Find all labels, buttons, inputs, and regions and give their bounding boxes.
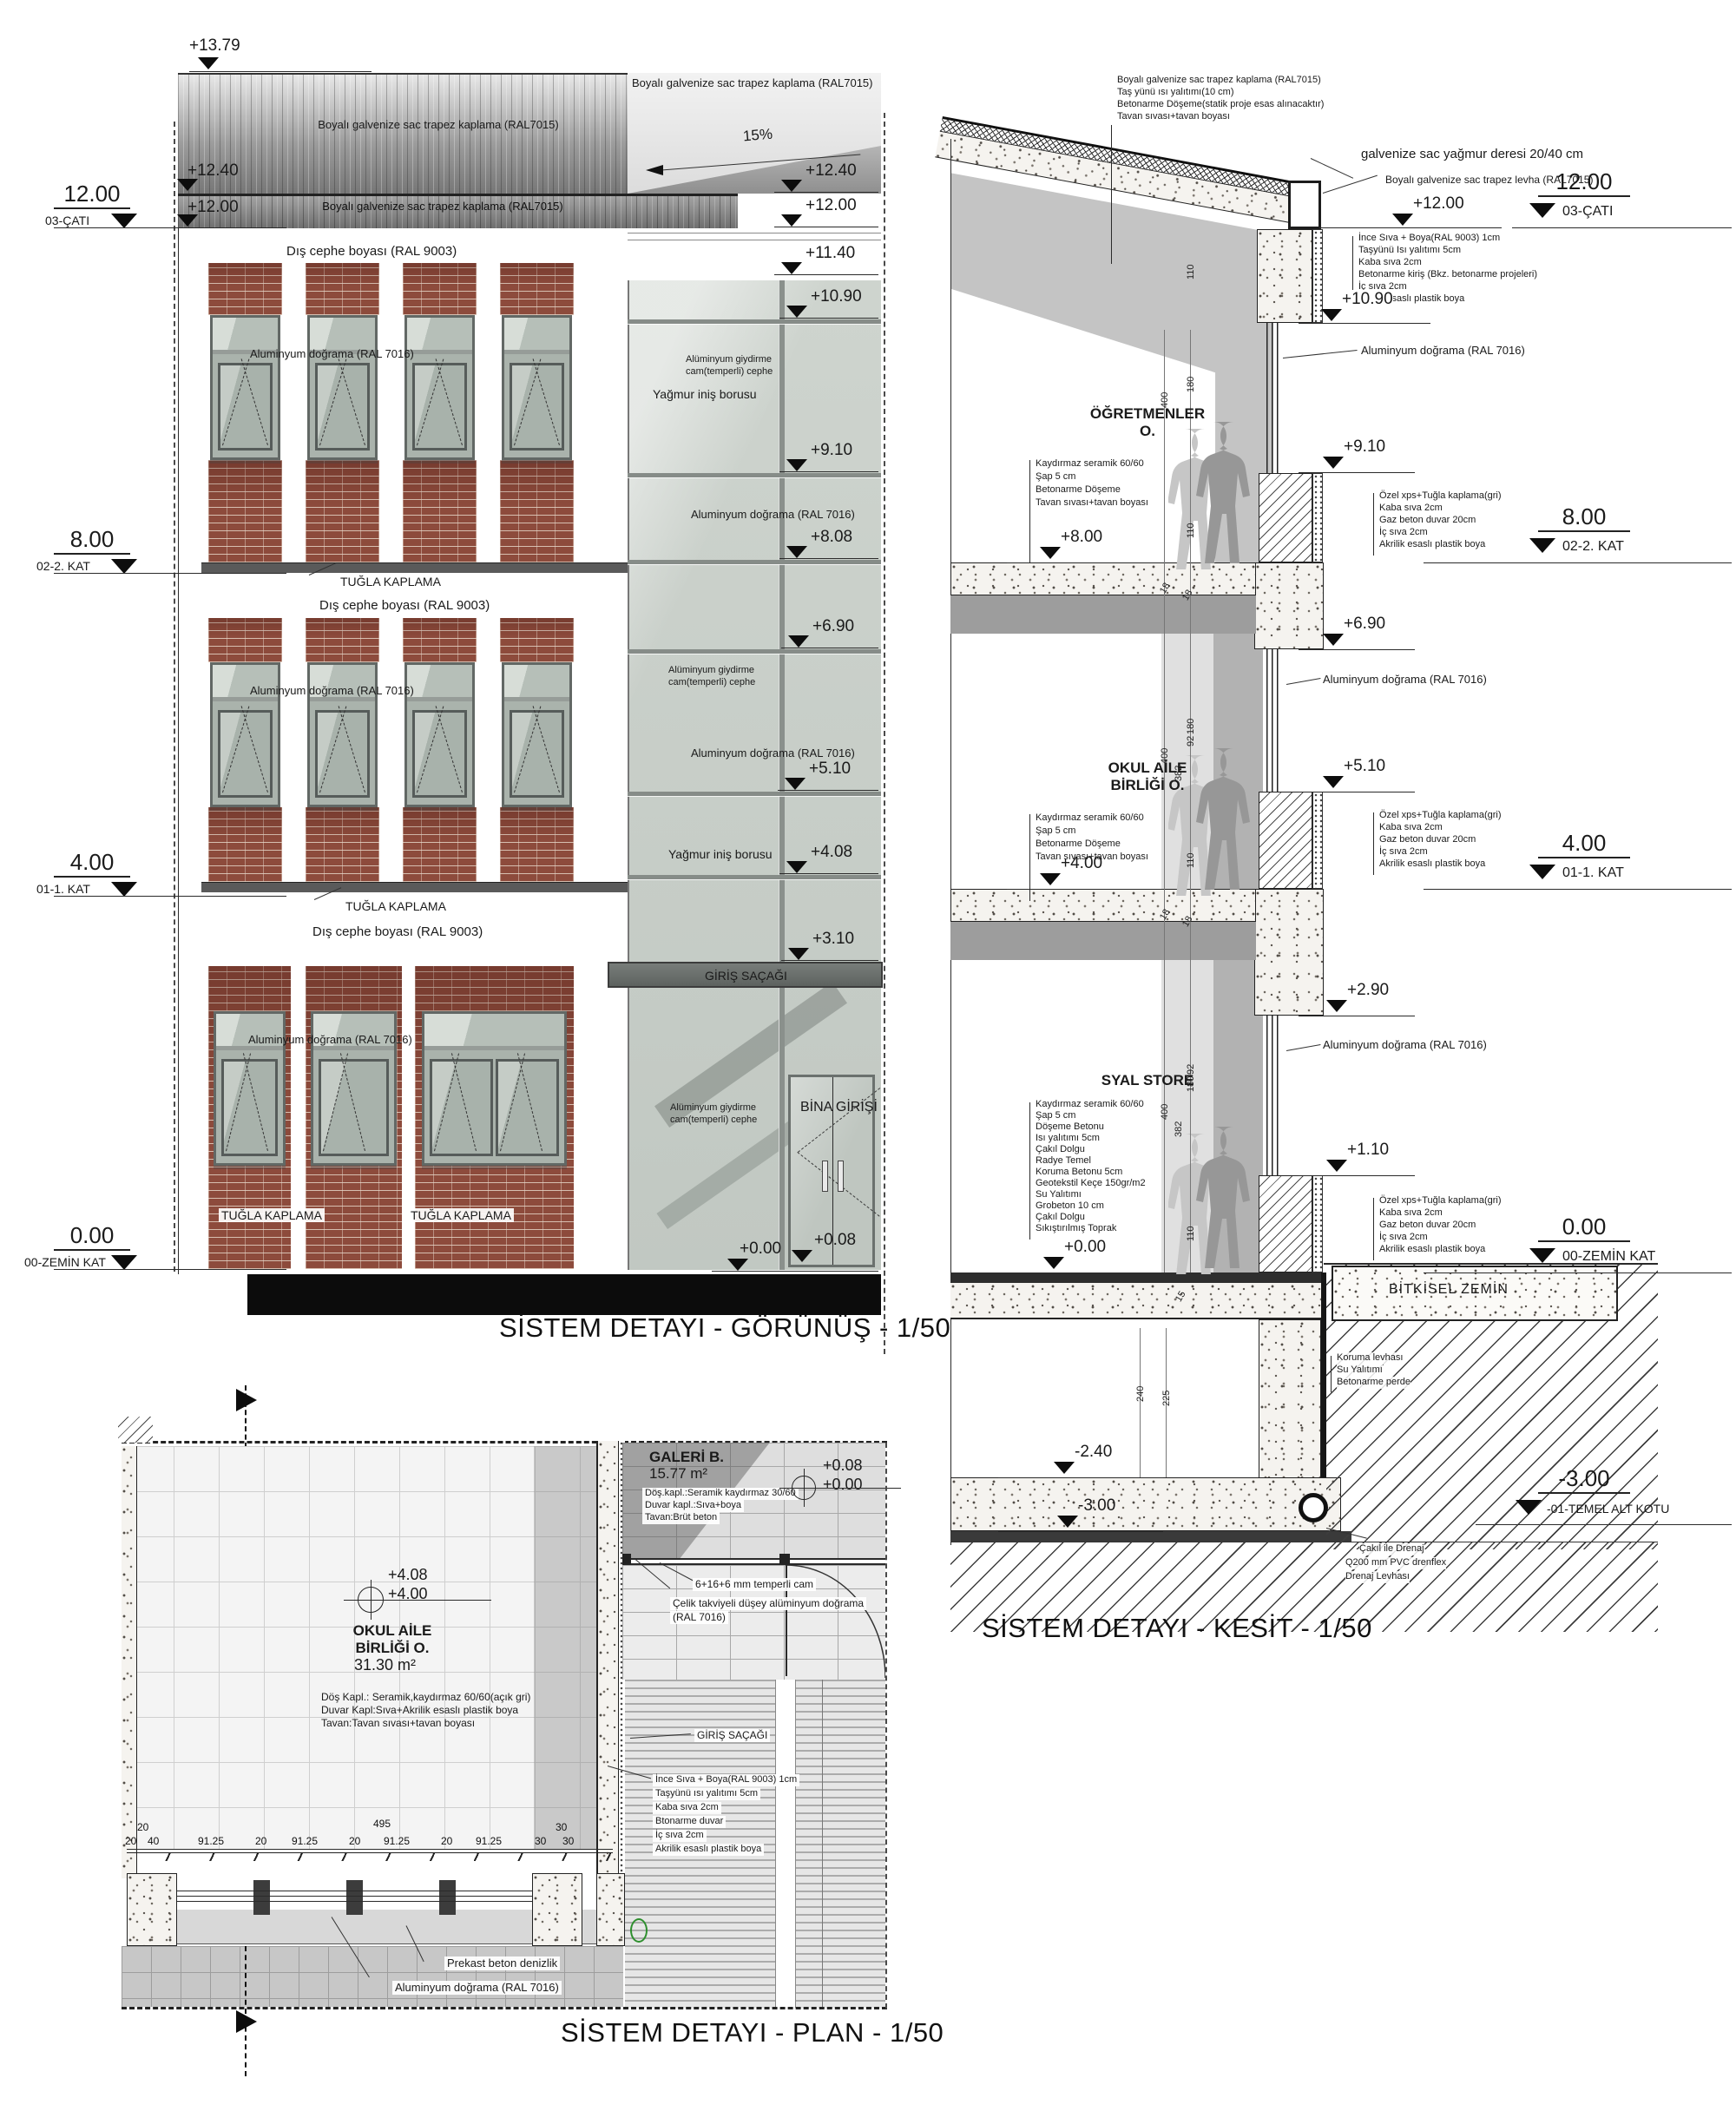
level-triangle — [1323, 776, 1344, 788]
canopy-edge-line — [822, 1680, 823, 2008]
dim-value: 110 — [1186, 852, 1196, 868]
storey-triangle — [111, 882, 137, 897]
dim-value: 20 — [255, 1835, 266, 1847]
window-casement — [221, 1059, 278, 1156]
dim-value: 91.25 — [292, 1835, 318, 1847]
window-fixed-pane — [504, 665, 569, 701]
window-casement — [315, 363, 370, 450]
elevation-boundary-dashed-line — [174, 122, 175, 1272]
storey-triangle — [1529, 865, 1555, 879]
level-line — [189, 71, 372, 72]
room-layers: Sıkıştırılmış Toprak — [1036, 1223, 1116, 1235]
curtain-label-line1: Alüminyum giydirme — [670, 1102, 756, 1115]
storey-level-value: 4.00 — [1538, 830, 1630, 858]
wall-layers: Özel xps+Tuğla kaplama(gri) — [1379, 490, 1502, 503]
curtain-mullion — [628, 560, 881, 564]
level-mark: +9.10 — [811, 441, 852, 460]
brick-pier — [208, 263, 282, 315]
curtain-mullion-vertical — [779, 280, 785, 1270]
level-line — [1299, 792, 1415, 792]
dim-value: 20 — [349, 1835, 360, 1847]
floor-slab — [201, 562, 628, 573]
dim-value: 382 — [1174, 1121, 1184, 1137]
storey-level-label: 03-ÇATI — [45, 214, 89, 227]
level-symbol-line — [371, 1580, 372, 1620]
room-layers: Duvar Kapl:Sıva+Akrilik esaslı plastik b… — [321, 1704, 518, 1717]
room-layers: Şap 5 cm — [1036, 471, 1075, 483]
dim-value: 91.25 — [476, 1835, 502, 1847]
basement-wall-layers: Koruma levhası — [1337, 1352, 1403, 1365]
curtain-mullion — [628, 792, 881, 796]
elevation-title: SİSTEM DETAYI - GÖRÜNÜŞ - 1/50 — [499, 1312, 950, 1344]
plan-mullion — [253, 1880, 270, 1915]
plan-bottom-cut-line — [122, 2007, 887, 2009]
brick-pier — [306, 618, 379, 662]
level-mark: +10.90 — [1342, 290, 1393, 309]
storey-level-value: 8.00 — [54, 526, 130, 555]
curtain-label-line2: cam(temperli) cephe — [670, 1115, 757, 1127]
storey-triangle — [111, 559, 137, 574]
leader — [1286, 1044, 1321, 1051]
level-triangle — [786, 459, 807, 471]
room-layers: Tavan:Tavan sıvası+tavan boyası — [321, 1717, 475, 1730]
storey-line — [1424, 889, 1732, 890]
plan-mullion — [346, 1880, 363, 1915]
room-layers: Tavan sıvası+tavan boyası — [1036, 497, 1148, 510]
curtain-mullion — [628, 473, 881, 477]
level-mark: -2.40 — [1075, 1443, 1112, 1462]
level-mark: +12.00 — [1413, 194, 1464, 214]
plan-room-bottom-line — [127, 1849, 613, 1850]
basement-wall-layers: Betonarme perde — [1337, 1377, 1410, 1389]
level-triangle — [1323, 634, 1344, 646]
leader — [1323, 175, 1378, 194]
storey-level-value: 12.00 — [1538, 168, 1630, 197]
dim-upper: 30 — [556, 1821, 567, 1833]
brick-pier — [500, 263, 574, 315]
parapet-beam — [1257, 229, 1312, 323]
level-triangle — [198, 57, 219, 69]
room-layers: Şap 5 cm — [1036, 1110, 1075, 1122]
window — [210, 315, 280, 460]
brick-pier — [403, 460, 477, 562]
dim-value: 225 — [1161, 1391, 1172, 1406]
foundation-raft — [950, 1477, 1341, 1531]
level-mark: -3.00 — [1078, 1496, 1115, 1516]
level-triangle — [781, 262, 802, 274]
alum-frame-label: Aluminyum doğrama (RAL 7016) — [1361, 344, 1525, 358]
level-mark: +12.40 — [806, 161, 857, 181]
level-triangle — [1392, 214, 1413, 226]
layer-bracket — [1029, 814, 1030, 901]
level-mark: +12.00 — [806, 196, 857, 215]
level-triangle — [786, 306, 807, 318]
tempered-glass-label: 6+16+6 mm temperli cam — [693, 1578, 816, 1591]
drain-label: Çakıl ile Drenaj — [1359, 1543, 1424, 1555]
level-line — [998, 1531, 1163, 1532]
plan-glazing-line — [177, 1891, 532, 1891]
level-triangle — [781, 214, 802, 227]
room-layers: Çakıl Dolgu — [1036, 1212, 1085, 1224]
drain-label: Q200 mm PVC drenflex — [1345, 1557, 1446, 1569]
roof-cladding-band-upper — [178, 73, 628, 194]
alum-frame-label: Aluminyum doğrama (RAL 7016) — [1323, 673, 1487, 687]
level-triangle — [786, 546, 807, 558]
storey-line — [1424, 1273, 1732, 1273]
level-line — [1299, 649, 1415, 650]
roof-edge-line — [628, 240, 881, 240]
dim-value: 180 — [1186, 719, 1196, 734]
room-layers: Kaydırmaz seramik 60/60 — [1036, 812, 1144, 825]
plan-left-wall — [122, 1446, 137, 1878]
drain-label: Drenaj Levhası — [1345, 1571, 1410, 1583]
level-triangle — [781, 180, 802, 192]
level-triangle — [727, 1259, 748, 1271]
room-layers: Radye Temel — [1036, 1155, 1091, 1167]
level-line — [1299, 1175, 1415, 1176]
level-line — [774, 227, 878, 227]
roof-layers: Betonarme Döşeme(statik proje esas alına… — [1117, 99, 1324, 111]
level-mark: +3.10 — [812, 930, 854, 949]
spandrel-insulation — [1312, 473, 1323, 562]
room-name: OKUL AİLE — [314, 1623, 470, 1639]
room-layers: Kaydırmaz seramik 60/60 — [1036, 1099, 1144, 1111]
window-casement — [319, 1059, 389, 1156]
layer-bracket — [1029, 460, 1030, 562]
brick-pier — [500, 460, 574, 562]
canopy-gap — [775, 1680, 796, 2008]
level-triangle — [788, 948, 809, 960]
precast-sill-label: Prekast beton denizlik — [444, 1956, 560, 1970]
plan-wall-layers: İç sıva 2cm — [653, 1830, 707, 1842]
wall-layers: İç sıva 2cm — [1379, 527, 1428, 539]
alum-frame-label: Aluminyum doğrama (RAL 7016) — [1323, 1038, 1487, 1052]
exterior-paving — [122, 1946, 623, 2007]
slab-soffit — [950, 595, 1256, 634]
facade-paint-label-3: Dış cephe boyası (RAL 9003) — [312, 925, 483, 939]
level-line — [779, 471, 878, 472]
room-name-2: BİRLİĞİ O. — [314, 1641, 470, 1656]
dim-line — [1190, 330, 1191, 1273]
alum-frame-label: Aluminyum doğrama (RAL 7016) — [392, 1981, 562, 1995]
level-mark: +4.08 — [811, 843, 852, 862]
leader — [1311, 158, 1353, 179]
leader — [1283, 350, 1358, 358]
dim-value: 20 — [125, 1835, 136, 1847]
parapet-layers: Betonarme kiriş (Bkz. betonarme projeler… — [1358, 269, 1537, 281]
brick-cladding-label: TUĞLA KAPLAMA — [340, 575, 441, 589]
level-mark: +11.40 — [806, 244, 855, 263]
dim-value: 30 — [535, 1835, 546, 1847]
level-symbol-line — [344, 1600, 491, 1601]
room-name-2: O. — [1069, 424, 1226, 439]
plan-wall-layers: Akrilik esaslı plastik boya — [653, 1844, 764, 1856]
galeri-level-top: +0.08 — [823, 1457, 863, 1475]
level-triangle — [786, 861, 807, 873]
steel-frame-label-2: (RAL 7016) — [670, 1611, 728, 1624]
building-edge — [178, 228, 179, 1274]
canopy-label: GİRİŞ SAÇAĞI — [694, 1729, 770, 1742]
plan-corner-wall-hatch — [118, 1417, 153, 1443]
level-line — [779, 558, 878, 559]
parapet-layers: Taşyünü Isı yalıtımı 5cm — [1358, 245, 1461, 257]
room-name: ÖĞRETMENLER — [1069, 406, 1226, 422]
curtain-label-line2: cam(temperli) cephe — [668, 677, 755, 689]
person-figure — [1168, 1120, 1299, 1274]
window-fixed-pane — [504, 318, 569, 354]
roof-layers: Taş yünü ısı yalıtımı(10 cm) — [1117, 87, 1233, 99]
dim-upper: 495 — [373, 1818, 391, 1830]
plan-mullion — [439, 1880, 456, 1915]
level-line — [779, 873, 878, 874]
storey-level-label: 02-2. KAT — [36, 559, 90, 573]
roof-label-3-clipped: Boyalı galvenize sac trapez kaplama (RAL… — [632, 76, 880, 90]
wall-layers: İç sıva 2cm — [1379, 846, 1428, 858]
edge-beam — [1254, 889, 1324, 1016]
parapet-layers: İnce Sıva + Boya(RAL 9003) 1cm — [1358, 233, 1500, 245]
alum-frame-label: Aluminyum doğrama (RAL 7016) — [250, 347, 414, 361]
window-casement — [315, 710, 370, 798]
level-mark: +1.10 — [1347, 1141, 1389, 1160]
gutter-label: galvenize sac yağmur deresi 20/40 cm — [1361, 148, 1583, 161]
dim-value: 180 — [1186, 377, 1196, 392]
level-mark: +6.90 — [812, 617, 854, 636]
brick-pier — [403, 263, 477, 315]
level-line — [998, 1477, 1163, 1478]
facade-paint-label-2: Dış cephe boyası (RAL 9003) — [319, 599, 490, 613]
storey-triangle — [111, 214, 137, 228]
galeri-area: 15.77 m² — [649, 1467, 707, 1481]
storey-level-value: 0.00 — [1538, 1213, 1630, 1242]
dim-value: 400 — [1160, 1104, 1170, 1120]
room-name-2: BİRLİĞİ O. — [1069, 778, 1226, 793]
rain-pipe-label: Yağmur iniş borusu — [653, 387, 757, 401]
storey-level-label: 03-ÇATI — [1562, 205, 1613, 219]
shop-window — [422, 1011, 567, 1166]
room-layers: Geotekstil Keçe 150gr/m2 — [1036, 1178, 1146, 1190]
window-casement — [218, 710, 273, 798]
room-layers: Betonarme Döşeme — [1036, 838, 1121, 851]
brick-pier — [403, 618, 477, 662]
level-triangle — [1326, 1000, 1347, 1012]
level-triangle — [1043, 1257, 1064, 1269]
brick-pier — [306, 460, 379, 562]
door-handle — [822, 1161, 828, 1192]
level-line — [778, 790, 878, 791]
room-layers: Grobeton 10 cm — [1036, 1200, 1104, 1213]
dim-value: 240 — [1135, 1386, 1146, 1402]
level-triangle — [785, 778, 806, 790]
window — [502, 662, 572, 807]
room-name: OKUL AİLE — [1069, 760, 1226, 776]
roof-layers: Boyalı galvenize sac trapez kaplama (RAL… — [1117, 75, 1321, 87]
level-mark: +8.00 — [1061, 528, 1102, 547]
storey-triangle — [1529, 538, 1555, 553]
section-title: SİSTEM DETAYI - KESİT - 1/50 — [982, 1613, 1372, 1644]
window-casement — [412, 710, 467, 798]
dim-value: 91.25 — [384, 1835, 410, 1847]
level-mark-entry-inner: +0.00 — [740, 1240, 781, 1259]
level-triangle — [1057, 1516, 1078, 1528]
facade-paint-label-1: Dış cephe boyası (RAL 9003) — [286, 245, 457, 259]
window-fixed-pane — [407, 318, 472, 354]
storey-level-label: 00-ZEMİN KAT — [24, 1255, 106, 1269]
level-mark: +10.90 — [811, 287, 862, 306]
level-mark-entry-outer: +0.08 — [814, 1231, 856, 1250]
storey-line — [54, 227, 286, 228]
alum-frame-label: Aluminyum doğrama (RAL 7016) — [691, 746, 855, 760]
level-line — [1299, 1016, 1415, 1016]
wall-layers: Özel xps+Tuğla kaplama(gri) — [1379, 1195, 1502, 1207]
level-triangle — [177, 179, 198, 191]
curtain-mullion — [628, 319, 881, 324]
galeri-level-bottom: +0.00 — [823, 1476, 863, 1494]
plan-right-cut-line — [885, 1443, 887, 2009]
dim-value: 92 — [1186, 736, 1196, 746]
dim-line-with-ticks — [127, 1852, 613, 1861]
level-line — [774, 274, 878, 275]
storey-line — [1476, 1524, 1732, 1525]
dim-upper: 20 — [137, 1821, 148, 1833]
dim-value: 30 — [562, 1835, 574, 1847]
storey-level-label: -01-TEMEL ALT KOTU — [1547, 1502, 1669, 1516]
basement-wall-layers: Su Yalıtımı — [1337, 1365, 1383, 1377]
level-triangle — [1326, 1160, 1347, 1172]
wall-layers: Akrilik esaslı plastik boya — [1379, 1244, 1485, 1256]
dim-line — [1140, 1328, 1141, 1477]
wall-layers: İç sıva 2cm — [1379, 1232, 1428, 1244]
level-symbol-line — [779, 1488, 901, 1489]
level-line — [1319, 227, 1502, 228]
level-mark: +0.00 — [1064, 1238, 1106, 1257]
window — [502, 315, 572, 460]
steel-frame-label-1: Çelik takviyeli düşey alüminyum doğrama — [670, 1597, 866, 1610]
slab-soffit — [950, 922, 1256, 960]
storey-triangle — [1529, 203, 1555, 218]
wall-layers: Gaz beton duvar 20cm — [1379, 834, 1476, 846]
room-layers: Betonarme Döşeme — [1036, 484, 1121, 497]
storey-level-label: 01-1. KAT — [1562, 866, 1624, 880]
dim-line — [1164, 330, 1165, 1273]
storey-line — [54, 896, 286, 897]
floor-slab — [201, 882, 628, 892]
room-layers: Isı yalıtımı 5cm — [1036, 1133, 1100, 1145]
room-level-top: +4.08 — [388, 1566, 428, 1584]
room-layers: Koruma Betonu 5cm — [1036, 1167, 1122, 1179]
level-line — [712, 1271, 878, 1272]
window-casement — [218, 363, 273, 450]
window-casement — [430, 1059, 493, 1156]
brick-pier — [403, 807, 477, 882]
section-cut-arrow — [236, 1389, 257, 1411]
edge-beam — [1254, 562, 1324, 649]
level-line — [1299, 323, 1430, 324]
dim-value: 110 — [1186, 264, 1196, 279]
alum-frame-label: Aluminyum doğrama (RAL 7016) — [248, 1033, 412, 1047]
level-line — [1007, 889, 1163, 890]
storey-line — [1512, 227, 1732, 228]
window-fixed-pane — [424, 1014, 564, 1050]
level-mark: +6.90 — [1344, 615, 1385, 634]
level-line — [781, 960, 878, 961]
window-casement — [496, 1059, 559, 1156]
rain-pipe-label: Yağmur iniş borusu — [668, 847, 773, 861]
plan-wall-layers: Kaba sıva 2cm — [653, 1802, 721, 1814]
galeri-layers: Döş.kapl.:Seramik kaydırmaz 30/60 — [642, 1488, 799, 1500]
storey-line — [54, 573, 286, 574]
curtain-mullion — [628, 875, 881, 879]
level-triangle — [1040, 873, 1061, 885]
galeri-name: GALERİ B. — [649, 1450, 724, 1465]
canopy-label: GİRİŞ SAÇAĞI — [705, 969, 787, 983]
roof-label-2: Boyalı galvenize sac trapez kaplama (RAL… — [260, 200, 625, 214]
room-layers: Su Yalıtımı — [1036, 1189, 1082, 1201]
room-floor-shade — [534, 1446, 596, 1849]
alum-frame-label: Aluminyum doğrama (RAL 7016) — [691, 508, 855, 522]
section-left-edge — [950, 139, 951, 1545]
plan-pier — [596, 1873, 625, 1946]
curtain-mullion — [628, 649, 881, 654]
wall-layers: Kaba sıva 2cm — [1379, 1207, 1443, 1220]
glass-partition — [622, 1558, 885, 1560]
room-area: 31.30 m² — [354, 1658, 416, 1672]
wall-layers: Kaba sıva 2cm — [1379, 503, 1443, 515]
level-mark-top: +13.79 — [189, 36, 240, 56]
layer-bracket — [1029, 1102, 1030, 1240]
slope-arrow-head — [646, 165, 663, 175]
drawing-sheet: 15% Boyalı galvenize sac trapez kaplama … — [0, 0, 1736, 2111]
level-mark: +2.90 — [1347, 981, 1389, 1000]
wall-layers: Akrilik esaslı plastik boya — [1379, 539, 1485, 551]
plan-glazing-line — [177, 1896, 532, 1897]
level-line — [779, 318, 878, 319]
level-mark: +8.08 — [811, 528, 852, 547]
room-layers: Çakıl Dolgu — [1036, 1144, 1085, 1156]
plan-pier — [532, 1873, 582, 1946]
curtain-label-line2: cam(temperli) cephe — [686, 366, 773, 378]
brick-pier — [208, 460, 282, 562]
storey-line — [1424, 562, 1732, 563]
section-cut-arrow — [236, 2010, 257, 2033]
wall-layers: Kaba sıva 2cm — [1379, 822, 1443, 834]
brick-cladding-label: TUĞLA KAPLAMA — [219, 1208, 325, 1222]
brick-cladding-label: TUĞLA KAPLAMA — [345, 899, 446, 913]
level-mark: +4.00 — [1061, 854, 1102, 873]
storey-level-value: 8.00 — [1538, 503, 1630, 532]
plan-wall-layers: Btonarme duvar — [653, 1816, 726, 1828]
room-layers: Kaydırmaz seramik 60/60 — [1036, 458, 1144, 470]
plan-glazing-line — [177, 1901, 532, 1902]
brick-pier — [306, 807, 379, 882]
storey-triangle — [1529, 1248, 1555, 1263]
level-triangle — [792, 1250, 812, 1262]
wall-layers: Özel xps+Tuğla kaplama(gri) — [1379, 810, 1502, 822]
spandrel-insulation — [1312, 792, 1323, 889]
room-layers: Döş Kapl.: Seramik,kaydırmaz 60/60(açık … — [321, 1691, 530, 1704]
curtain-label-line1: Alüminyum giydirme — [686, 354, 772, 366]
drain-pipe — [1299, 1493, 1328, 1522]
base-plinth — [247, 1274, 881, 1315]
level-triangle — [1054, 1462, 1075, 1474]
level-triangle — [1040, 547, 1061, 559]
level-mark-1240-left: +12.40 — [187, 161, 239, 181]
leader — [1286, 678, 1321, 685]
wall-layers: Gaz beton duvar 20cm — [1379, 515, 1476, 527]
storey-level-value: 12.00 — [54, 181, 130, 209]
storey-triangle — [1516, 1500, 1542, 1515]
window — [404, 662, 475, 807]
dim-value: 110 — [1186, 1226, 1196, 1241]
